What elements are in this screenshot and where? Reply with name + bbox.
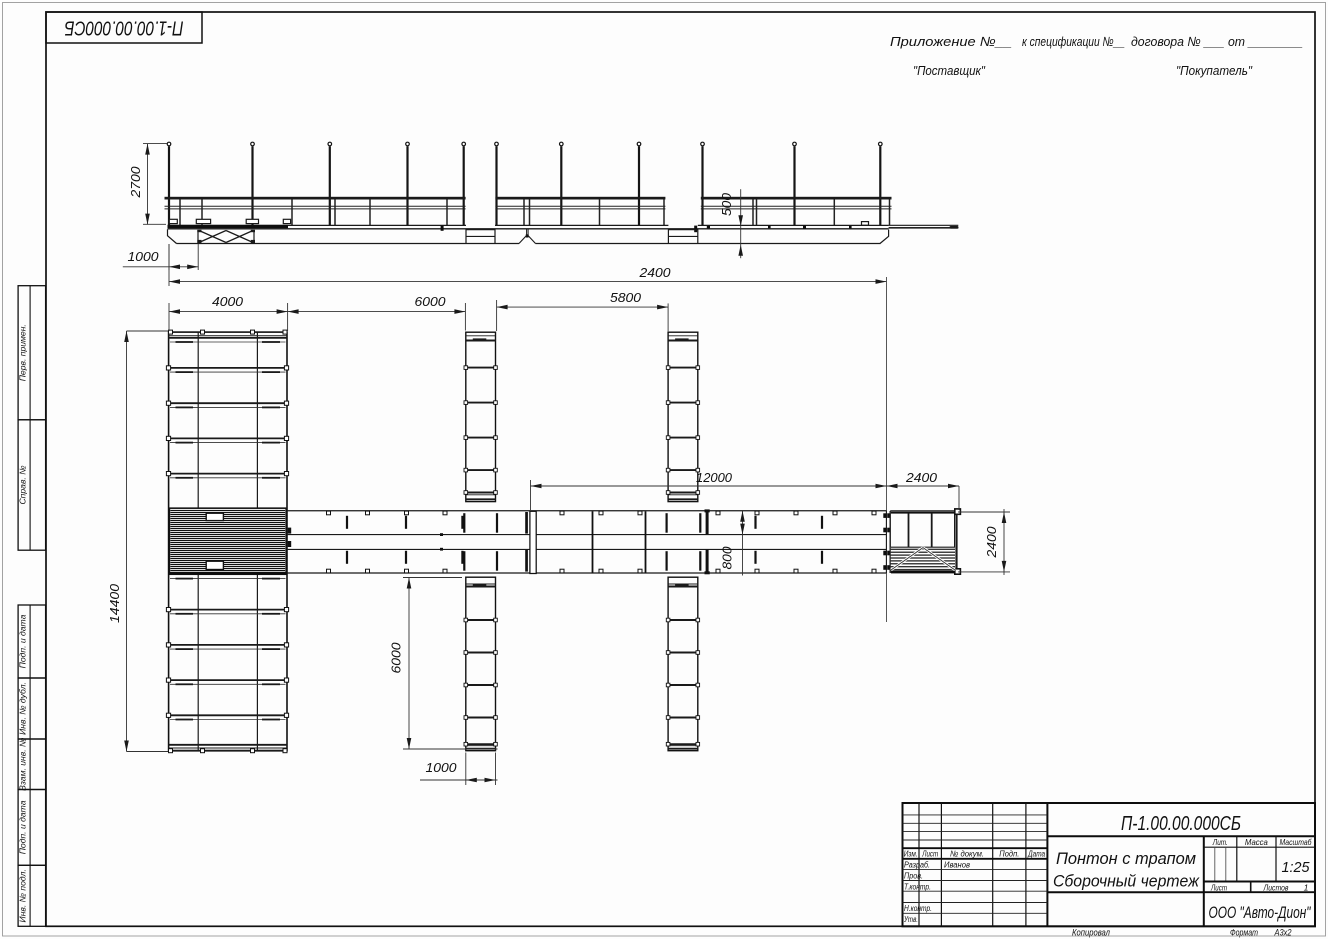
svg-text:6000: 6000 bbox=[389, 642, 404, 674]
svg-text:Приложение №__: Приложение №__ bbox=[890, 34, 1012, 49]
svg-text:Лист: Лист bbox=[921, 848, 938, 858]
svg-text:П-1.00.00.000СБ: П-1.00.00.000СБ bbox=[65, 17, 184, 39]
svg-text:Понтон с трапом: Понтон с трапом bbox=[1056, 850, 1196, 868]
svg-text:№ докум.: № докум. bbox=[950, 848, 984, 858]
svg-text:Н.контр.: Н.контр. bbox=[904, 903, 932, 913]
svg-text:4000: 4000 bbox=[212, 294, 244, 309]
svg-text:Подп. и дата: Подп. и дата bbox=[18, 800, 28, 854]
svg-text:5800: 5800 bbox=[610, 290, 642, 305]
svg-text:Подп. и дата: Подп. и дата bbox=[18, 614, 28, 668]
svg-text:договора № ___ от ________: договора № ___ от ________ bbox=[1131, 34, 1303, 49]
svg-text:"Покупатель": "Покупатель" bbox=[1176, 63, 1253, 78]
svg-text:ООО "Авто-Дион": ООО "Авто-Дион" bbox=[1209, 904, 1312, 922]
svg-text:6000: 6000 bbox=[415, 294, 447, 309]
svg-text:Сборочный чертеж: Сборочный чертеж bbox=[1053, 873, 1200, 891]
svg-text:к спецификации №__: к спецификации №__ bbox=[1022, 34, 1125, 49]
svg-text:1000: 1000 bbox=[128, 249, 160, 264]
svg-text:Копировал: Копировал bbox=[1072, 927, 1111, 938]
svg-text:500: 500 bbox=[719, 192, 734, 216]
svg-text:2400: 2400 bbox=[984, 526, 999, 559]
svg-text:Иванов: Иванов bbox=[944, 860, 970, 870]
svg-text:Листов: Листов bbox=[1263, 882, 1289, 892]
svg-text:Справ. №: Справ. № bbox=[18, 465, 28, 504]
svg-text:Разраб.: Разраб. bbox=[904, 860, 930, 870]
svg-text:Взам. инв. №: Взам. инв. № bbox=[18, 738, 28, 791]
svg-text:Перв. примен.: Перв. примен. bbox=[18, 324, 28, 381]
svg-text:1000: 1000 bbox=[426, 760, 458, 775]
svg-text:"Поставщик": "Поставщик" bbox=[913, 63, 986, 78]
svg-text:1: 1 bbox=[1304, 882, 1309, 892]
svg-text:Лист: Лист bbox=[1210, 882, 1227, 892]
svg-text:Подп.: Подп. bbox=[999, 848, 1019, 858]
svg-text:2400: 2400 bbox=[638, 265, 671, 280]
svg-text:Изм.: Изм. bbox=[904, 848, 918, 858]
svg-text:14400: 14400 bbox=[107, 583, 122, 623]
svg-text:Утв.: Утв. bbox=[903, 914, 918, 924]
svg-text:Инв. № дубл.: Инв. № дубл. bbox=[18, 682, 28, 735]
svg-text:Лит.: Лит. bbox=[1212, 837, 1228, 847]
svg-text:Формат: Формат bbox=[1230, 927, 1258, 938]
svg-text:Пров.: Пров. bbox=[904, 871, 923, 881]
svg-text:2400: 2400 bbox=[905, 470, 938, 485]
svg-text:12000: 12000 bbox=[696, 470, 733, 485]
svg-text:П-1.00.00.000СБ: П-1.00.00.000СБ bbox=[1121, 812, 1241, 835]
svg-text:Масса: Масса bbox=[1245, 837, 1268, 847]
svg-text:Дата: Дата bbox=[1027, 848, 1045, 858]
svg-text:800: 800 bbox=[720, 546, 735, 570]
svg-text:Инв. № подл.: Инв. № подл. bbox=[18, 869, 28, 922]
svg-text:Т.контр.: Т.контр. bbox=[904, 881, 931, 891]
svg-text:А3х2: А3х2 bbox=[1274, 927, 1292, 938]
svg-text:1:25: 1:25 bbox=[1282, 860, 1311, 876]
svg-text:2700: 2700 bbox=[128, 166, 143, 199]
svg-text:Масштаб: Масштаб bbox=[1280, 837, 1313, 847]
